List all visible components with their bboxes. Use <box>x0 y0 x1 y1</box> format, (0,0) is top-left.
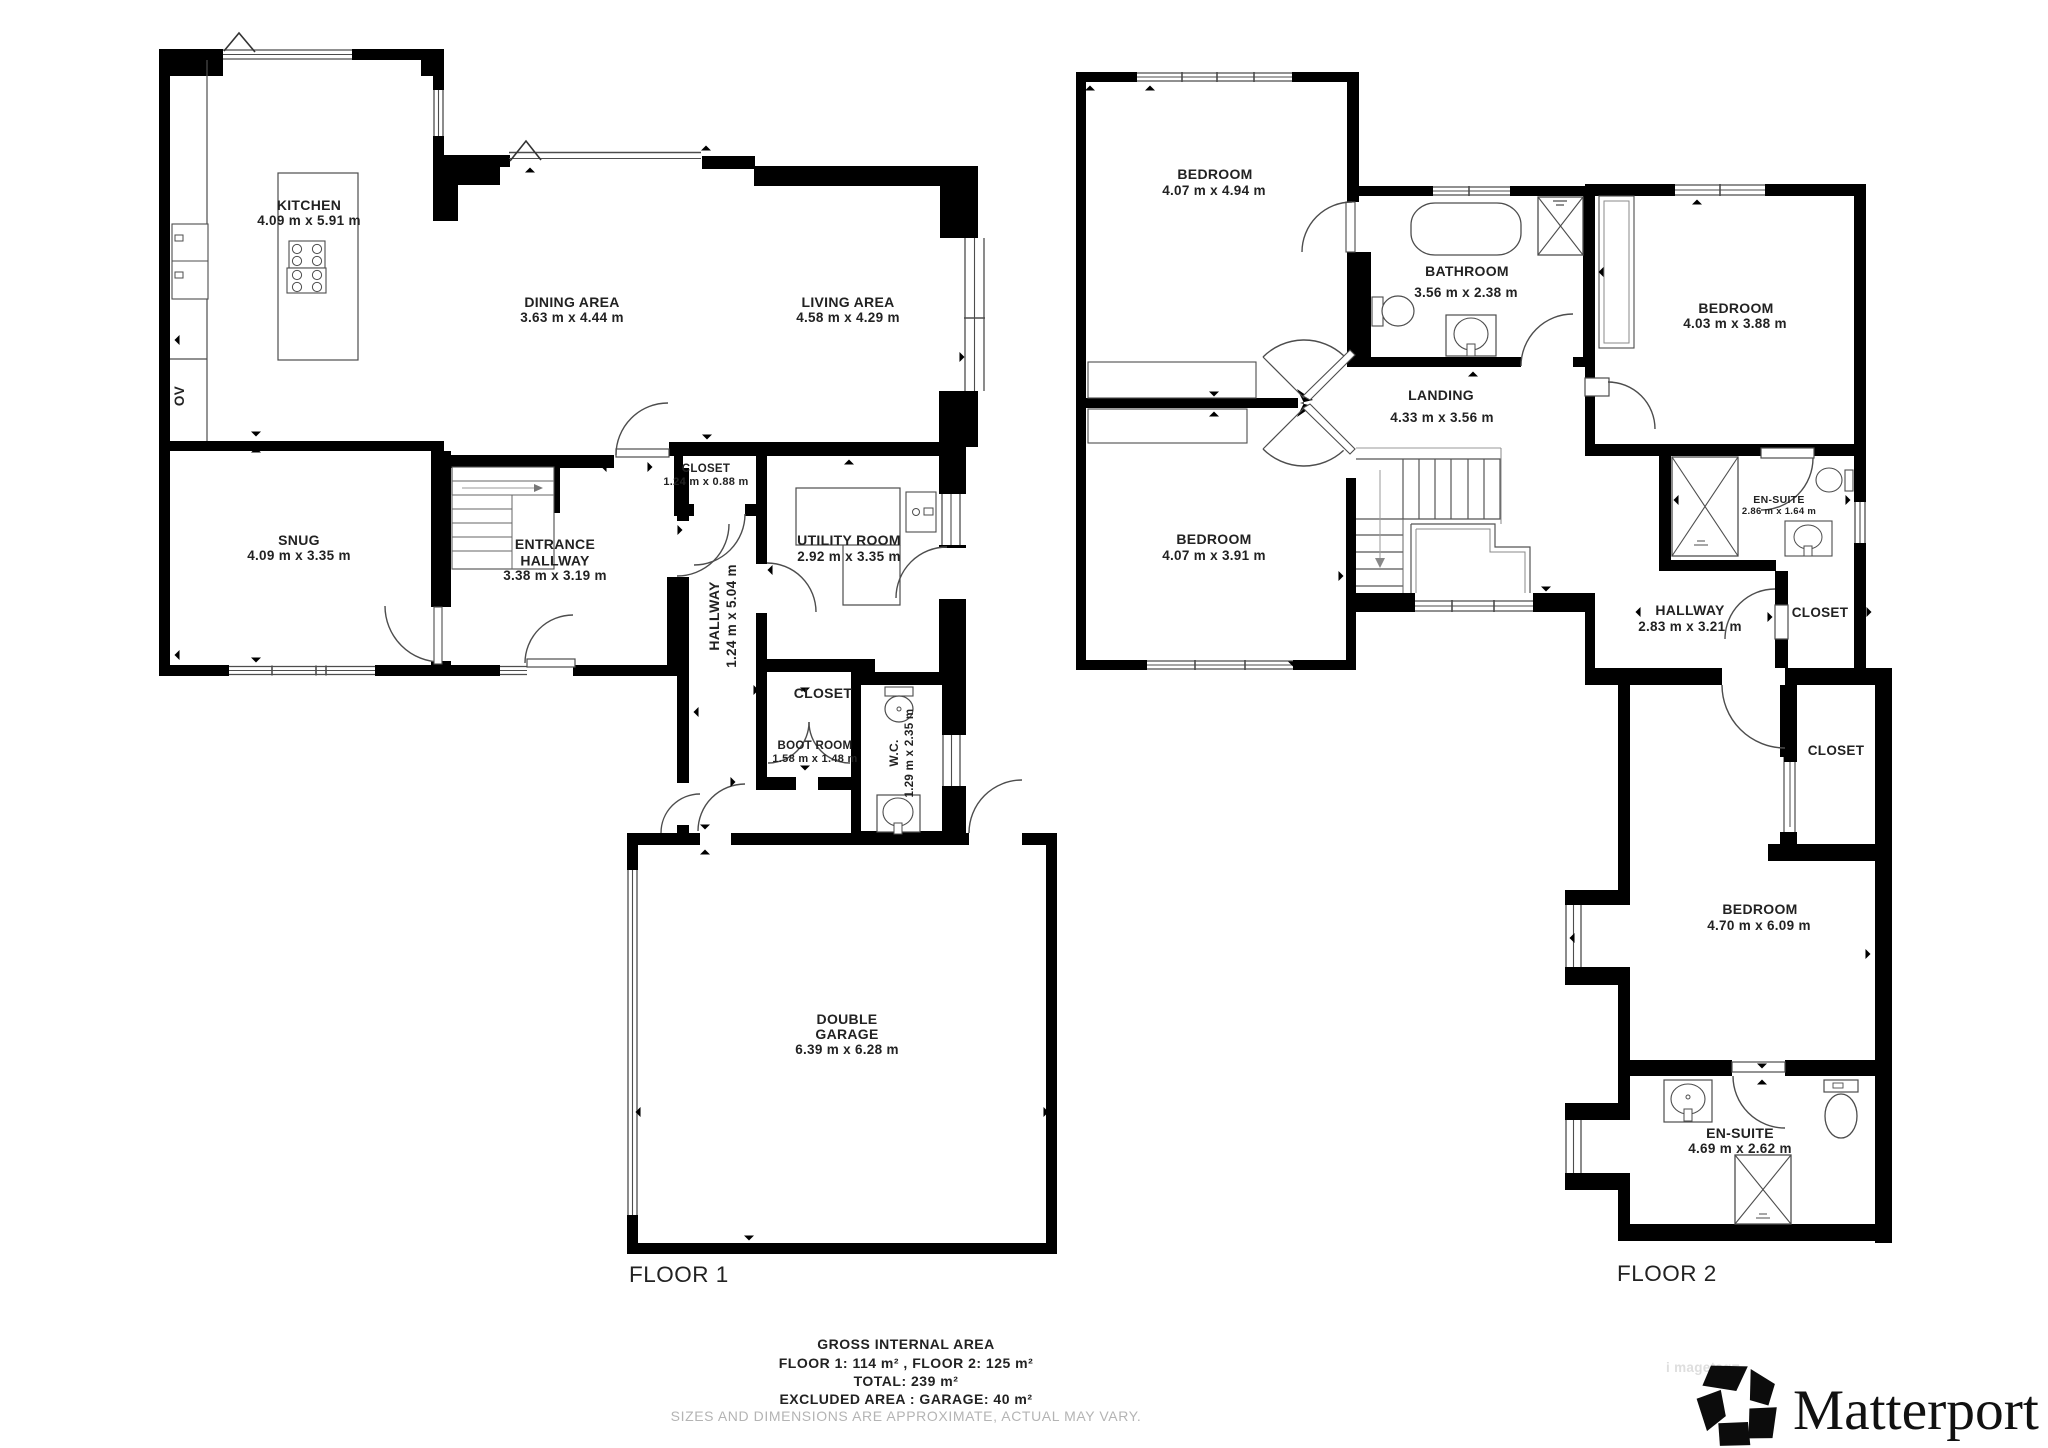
svg-text:ENTRANCE: ENTRANCE <box>515 536 595 552</box>
svg-text:CLOSET: CLOSET <box>1792 605 1849 620</box>
svg-text:3.56 m x 2.38 m: 3.56 m x 2.38 m <box>1414 285 1518 300</box>
svg-text:CLOSET: CLOSET <box>682 463 730 475</box>
svg-text:EN-SUITE: EN-SUITE <box>1706 1125 1774 1141</box>
svg-text:GROSS INTERNAL AREA: GROSS INTERNAL AREA <box>817 1336 995 1352</box>
svg-text:4.09 m x 5.91 m: 4.09 m x 5.91 m <box>257 213 361 228</box>
svg-text:4.07 m x 3.91 m: 4.07 m x 3.91 m <box>1162 548 1266 563</box>
svg-text:HALLWAY: HALLWAY <box>706 581 722 651</box>
svg-text:LIVING AREA: LIVING AREA <box>801 294 894 310</box>
svg-text:4.58 m x 4.29 m: 4.58 m x 4.29 m <box>796 310 900 325</box>
svg-text:4.03 m x 3.88 m: 4.03 m x 3.88 m <box>1683 316 1787 331</box>
svg-text:BEDROOM: BEDROOM <box>1177 166 1252 182</box>
svg-text:BEDROOM: BEDROOM <box>1176 531 1251 547</box>
svg-text:2.83 m x 3.21 m: 2.83 m x 3.21 m <box>1638 619 1742 634</box>
svg-text:BOOT ROOM: BOOT ROOM <box>778 740 853 752</box>
svg-text:TOTAL: 239 m²: TOTAL: 239 m² <box>854 1373 959 1389</box>
svg-text:DINING AREA: DINING AREA <box>524 294 619 310</box>
svg-text:HALLWAY: HALLWAY <box>1655 602 1725 618</box>
svg-text:2.86 m x 1.64 m: 2.86 m x 1.64 m <box>1742 506 1816 517</box>
svg-text:KITCHEN: KITCHEN <box>277 197 341 213</box>
svg-text:1.24 m x 0.88 m: 1.24 m x 0.88 m <box>663 476 748 488</box>
svg-text:Matterport: Matterport <box>1793 1379 2039 1442</box>
svg-text:HALLWAY: HALLWAY <box>520 553 590 569</box>
svg-text:SNUG: SNUG <box>278 532 320 548</box>
svg-text:GARAGE: GARAGE <box>815 1026 878 1042</box>
svg-text:4.69 m x 2.62 m: 4.69 m x 2.62 m <box>1688 1141 1792 1156</box>
svg-text:FLOOR 1: FLOOR 1 <box>629 1262 729 1287</box>
svg-text:LANDING: LANDING <box>1408 387 1474 403</box>
svg-text:SIZES AND DIMENSIONS ARE APPRO: SIZES AND DIMENSIONS ARE APPROXIMATE, AC… <box>671 1408 1142 1424</box>
svg-text:FLOOR 1: 114 m² , FLOOR 2: 125: FLOOR 1: 114 m² , FLOOR 2: 125 m² <box>779 1355 1034 1371</box>
svg-text:4.70 m x 6.09 m: 4.70 m x 6.09 m <box>1707 918 1811 933</box>
svg-text:3.38 m x 3.19 m: 3.38 m x 3.19 m <box>503 568 607 583</box>
svg-text:EXCLUDED AREA : GARAGE: 40 m²: EXCLUDED AREA : GARAGE: 40 m² <box>779 1391 1032 1407</box>
svg-text:CLOSET: CLOSET <box>1808 743 1865 758</box>
svg-text:3.63 m x 4.44 m: 3.63 m x 4.44 m <box>520 310 624 325</box>
svg-text:BEDROOM: BEDROOM <box>1722 901 1797 917</box>
svg-text:DOUBLE: DOUBLE <box>817 1011 878 1027</box>
svg-text:OV: OV <box>172 386 187 406</box>
svg-text:1.24 m x 5.04 m: 1.24 m x 5.04 m <box>724 564 739 668</box>
svg-text:4.09 m x 3.35 m: 4.09 m x 3.35 m <box>247 548 351 563</box>
svg-text:4.07 m x 4.94 m: 4.07 m x 4.94 m <box>1162 183 1266 198</box>
svg-text:6.39 m x 6.28 m: 6.39 m x 6.28 m <box>795 1042 899 1057</box>
svg-text:CLOSET: CLOSET <box>794 685 853 701</box>
svg-text:4.33 m x 3.56 m: 4.33 m x 3.56 m <box>1390 410 1494 425</box>
svg-text:1.29 m x 2.35 m: 1.29 m x 2.35 m <box>904 709 916 798</box>
svg-text:W.C.: W.C. <box>887 739 901 766</box>
svg-text:2.92 m x 3.35 m: 2.92 m x 3.35 m <box>797 549 901 564</box>
svg-text:FLOOR 2: FLOOR 2 <box>1617 1261 1717 1286</box>
svg-text:1.58 m x 1.48 m: 1.58 m x 1.48 m <box>772 753 857 765</box>
svg-text:BATHROOM: BATHROOM <box>1425 263 1509 279</box>
svg-text:EN-SUITE: EN-SUITE <box>1753 494 1804 506</box>
svg-text:UTILITY ROOM: UTILITY ROOM <box>797 532 901 548</box>
svg-text:BEDROOM: BEDROOM <box>1698 300 1773 316</box>
